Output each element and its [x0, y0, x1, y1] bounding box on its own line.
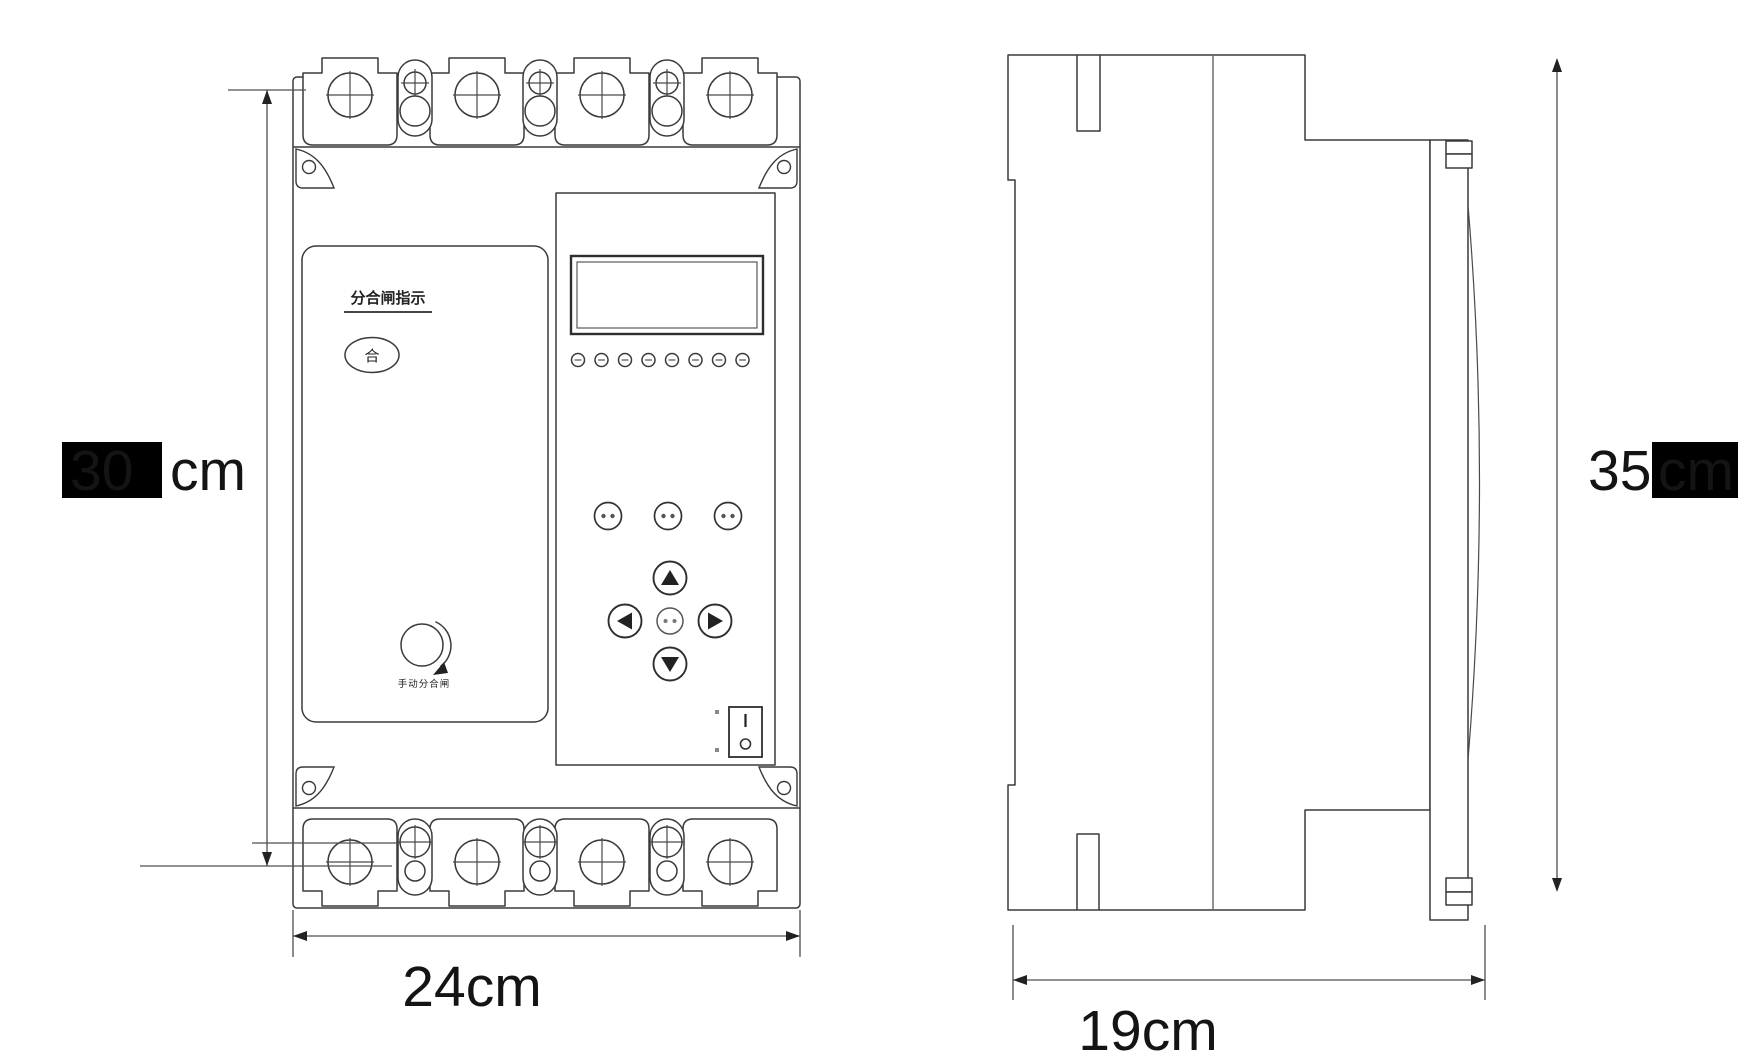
dim-side-depth: 19cm	[1013, 925, 1485, 1063]
led-icon	[689, 354, 702, 367]
terminal-block	[303, 58, 397, 145]
terminal-block	[555, 58, 649, 145]
switch-on-mark	[715, 710, 719, 714]
dim-front-height-label: cm	[170, 439, 246, 503]
indicator-panel: 分合闸指示 合 手动分合闸	[302, 246, 548, 722]
arrowhead-right-icon	[1471, 975, 1485, 985]
switch-off-mark	[715, 748, 719, 752]
led-icon	[642, 354, 655, 367]
aux-terminal-oval	[650, 60, 684, 136]
led-icon	[666, 354, 679, 367]
arrowhead-up-icon	[1552, 58, 1562, 72]
arrow-left-button[interactable]	[609, 605, 642, 638]
switch-off-icon	[741, 739, 751, 749]
led-icon	[572, 354, 585, 367]
dimension-drawing: 分合闸指示 合 手动分合闸	[0, 0, 1741, 1064]
arrow-up-button[interactable]	[654, 562, 687, 595]
aux-terminal-oval	[398, 819, 432, 895]
led-icon	[595, 354, 608, 367]
aux-terminal-oval	[650, 819, 684, 895]
led-icon	[736, 354, 749, 367]
bottom-terminal-bank	[303, 819, 777, 906]
led-icon	[713, 354, 726, 367]
function-button-3[interactable]	[715, 503, 742, 530]
plate-curve-line	[1468, 205, 1480, 760]
arrowhead-right-icon	[786, 931, 800, 941]
arrow-right-button[interactable]	[699, 605, 732, 638]
function-button-2[interactable]	[655, 503, 682, 530]
arrowhead-down-icon	[262, 852, 272, 866]
dim-side-height-label: 35	[1588, 439, 1651, 503]
led-icon	[619, 354, 632, 367]
confirm-button[interactable]	[657, 608, 683, 634]
indicator-panel-title: 分合闸指示	[350, 289, 425, 307]
manual-knob-label: 手动分合闸	[398, 678, 451, 690]
aux-terminal-oval	[398, 60, 432, 136]
dim-front-width-label: 24cm	[402, 955, 541, 1019]
dim-front-width: 24cm	[293, 910, 800, 1019]
top-terminal-bank	[303, 58, 777, 145]
plate-clip-bottom	[1446, 878, 1472, 892]
dim-side-height: 35 cm	[1552, 58, 1738, 892]
close-indicator-symbol: 合	[364, 348, 379, 365]
plate-clip-top	[1446, 141, 1472, 154]
arrowhead-up-icon	[262, 90, 272, 104]
arrowhead-down-icon	[1552, 878, 1562, 892]
dim-side-height-hidden: cm	[1658, 439, 1734, 503]
dim-side-depth-label: 19cm	[1078, 999, 1217, 1063]
arrow-down-button[interactable]	[654, 648, 687, 681]
control-panel	[556, 193, 775, 765]
terminal-block	[683, 58, 777, 145]
function-button-1[interactable]	[595, 503, 622, 530]
plate-clip-top	[1446, 154, 1472, 168]
terminal-block	[430, 58, 524, 145]
side-view	[1008, 55, 1480, 920]
arrowhead-left-icon	[1013, 975, 1027, 985]
aux-terminal-oval	[523, 60, 557, 136]
aux-terminal-oval	[523, 819, 557, 895]
arrowhead-left-icon	[293, 931, 307, 941]
side-body-outline	[1008, 55, 1430, 910]
plate-clip-bottom	[1446, 892, 1472, 905]
front-view: 分合闸指示 合 手动分合闸	[293, 58, 800, 908]
lcd-display	[571, 256, 763, 334]
dim-front-height-hidden: 30	[70, 439, 133, 503]
technical-drawing-page: 分合闸指示 合 手动分合闸	[0, 0, 1741, 1064]
front-plate-profile	[1430, 140, 1468, 920]
